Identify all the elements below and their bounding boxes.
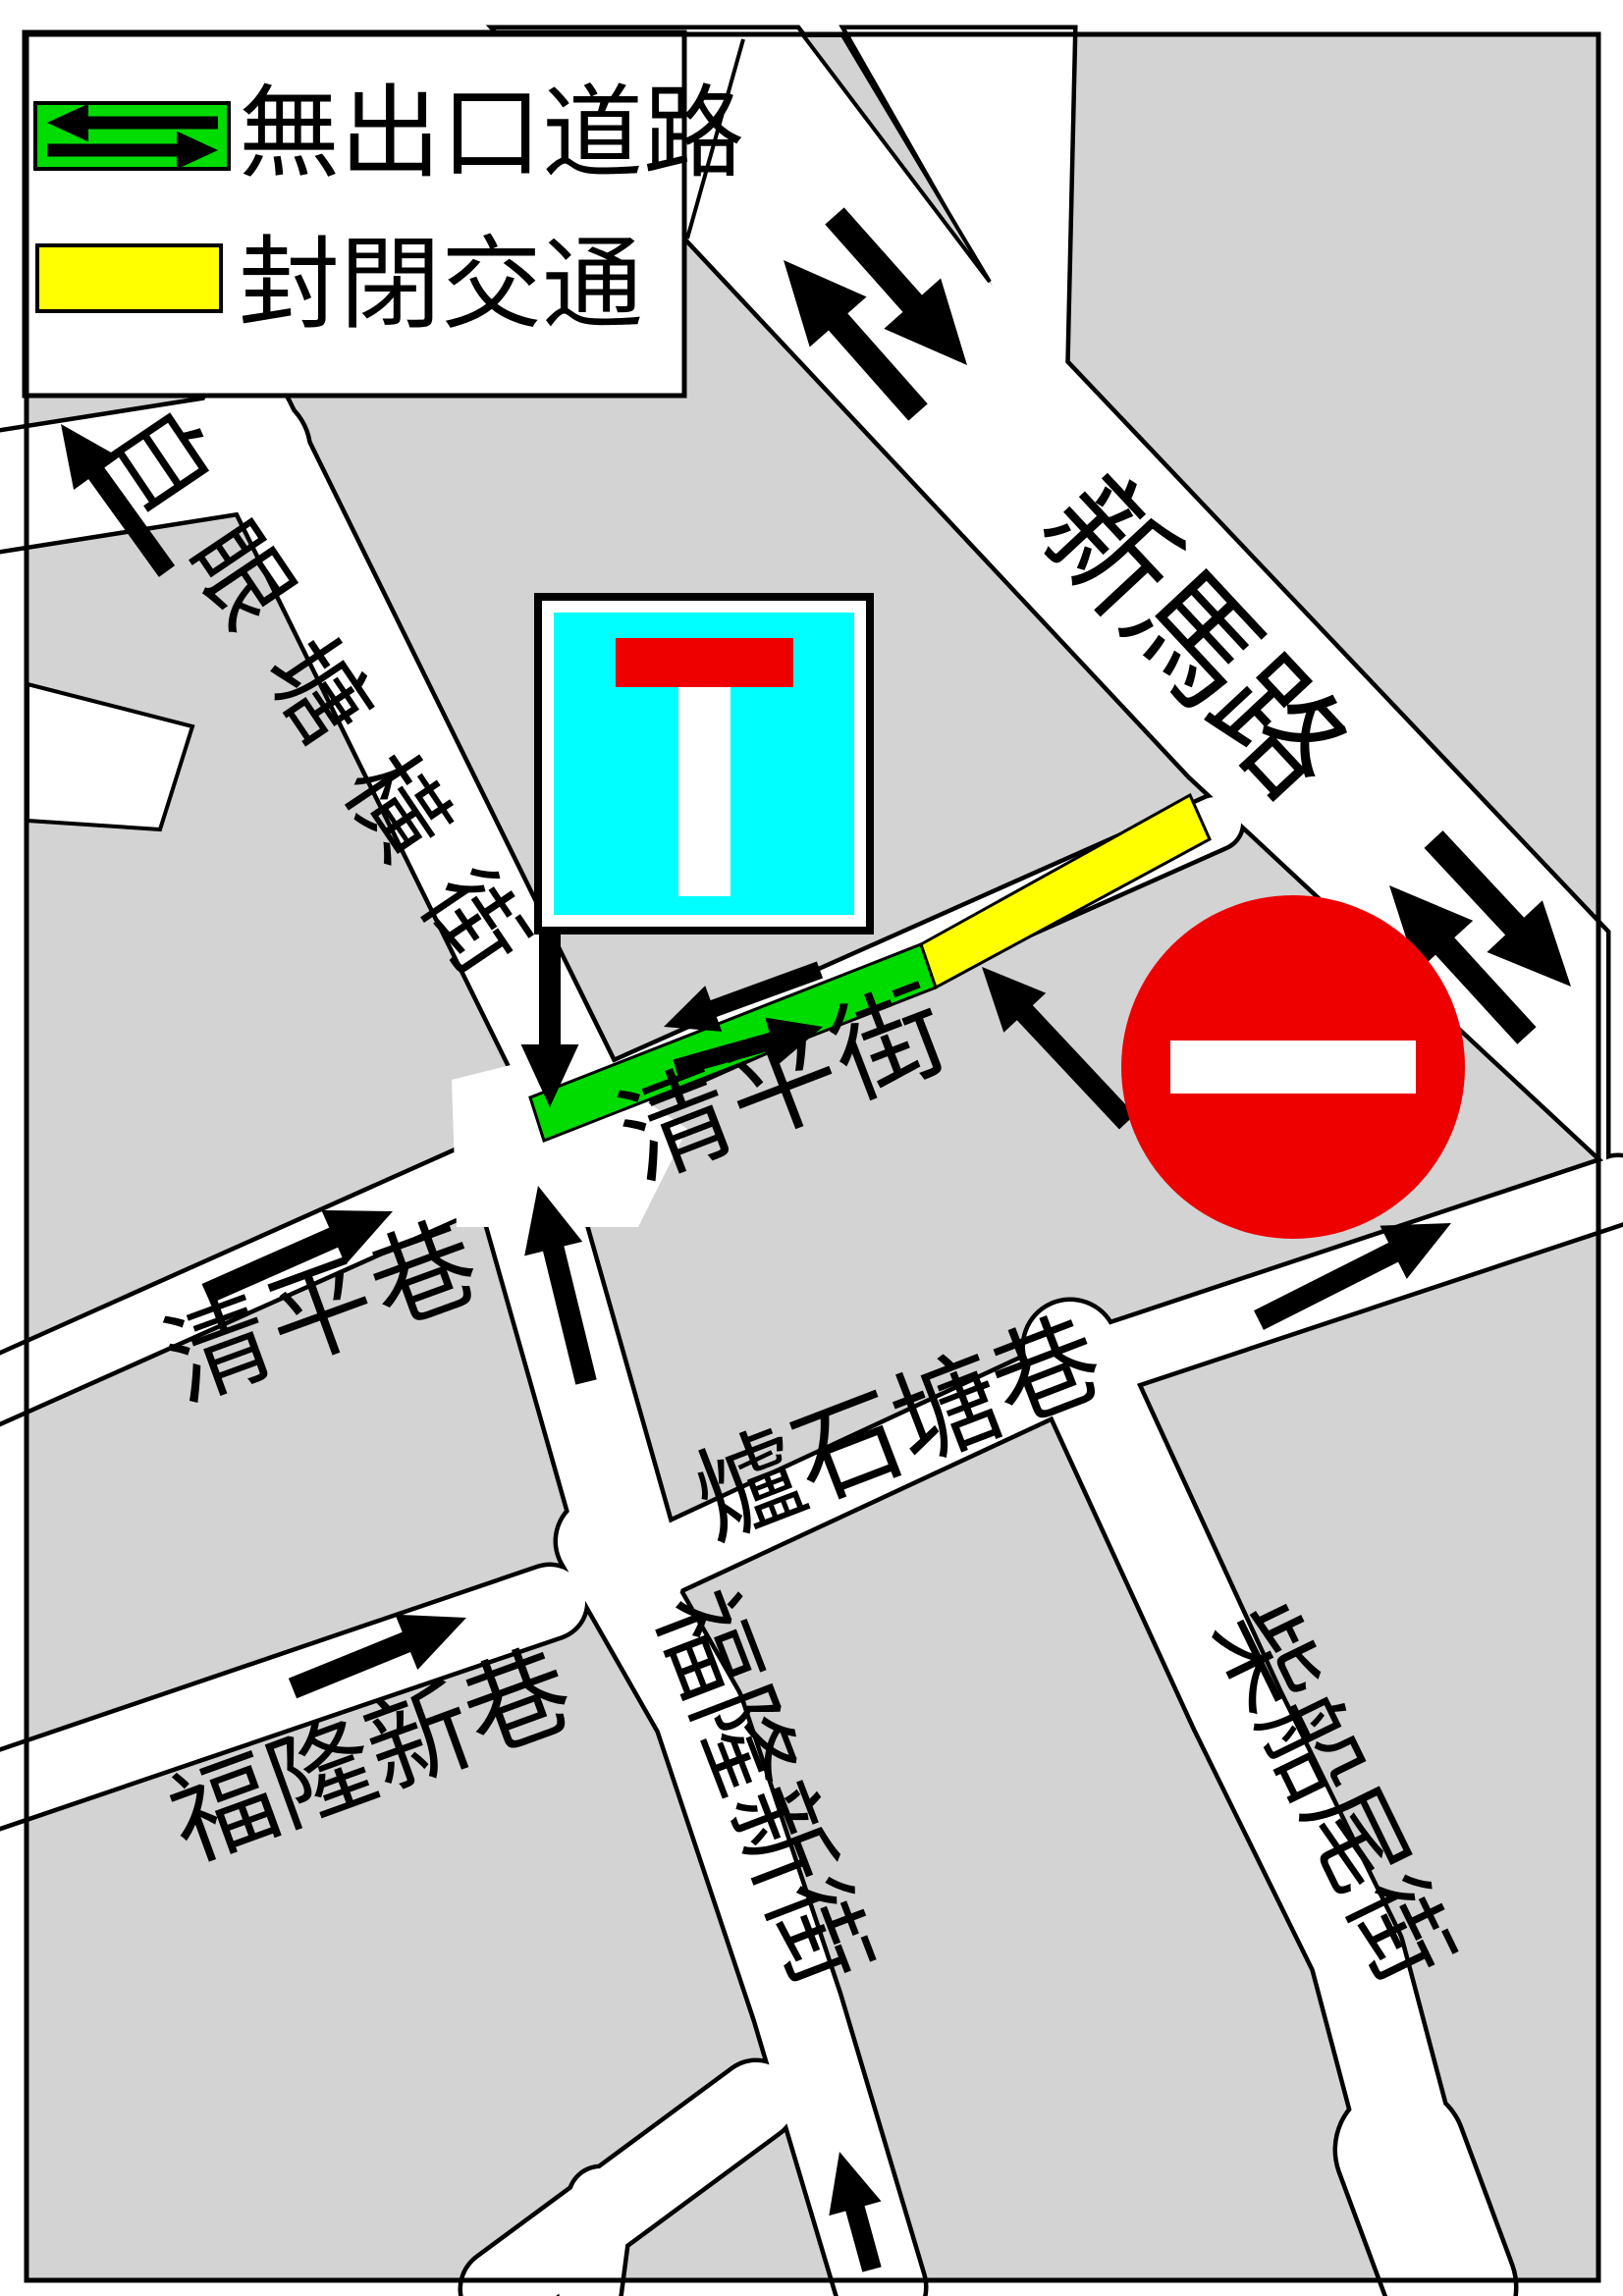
legend-label-closed-traffic: 封閉交通	[239, 230, 643, 342]
traffic-map-page: 新馬路白眼塘橫街清平街清平巷爐石塘巷福隆新巷福隆新街柴船尾街無出口道路封閉交通	[0, 0, 1623, 2296]
street-map: 新馬路白眼塘橫街清平街清平巷爐石塘巷福隆新巷福隆新街柴船尾街無出口道路封閉交通	[0, 0, 1623, 2296]
dead-end-sign-bar-icon	[616, 638, 793, 687]
legend-label-no-exit-road: 無出口道路	[239, 79, 744, 190]
legend: 無出口道路封閉交通	[25, 32, 744, 396]
no-entry-bar-icon	[1170, 1041, 1416, 1094]
dead-end-sign-stem-icon	[678, 687, 730, 896]
legend-swatch-closed-traffic	[37, 245, 221, 311]
road-chai-sun-mei-south-widen	[1400, 2150, 1451, 2287]
road-bottom-stub	[589, 2199, 601, 2289]
dead-end-sign	[538, 597, 870, 931]
no-entry-sign	[1121, 895, 1465, 1239]
legend-swatch-no-exit-road	[35, 103, 229, 169]
